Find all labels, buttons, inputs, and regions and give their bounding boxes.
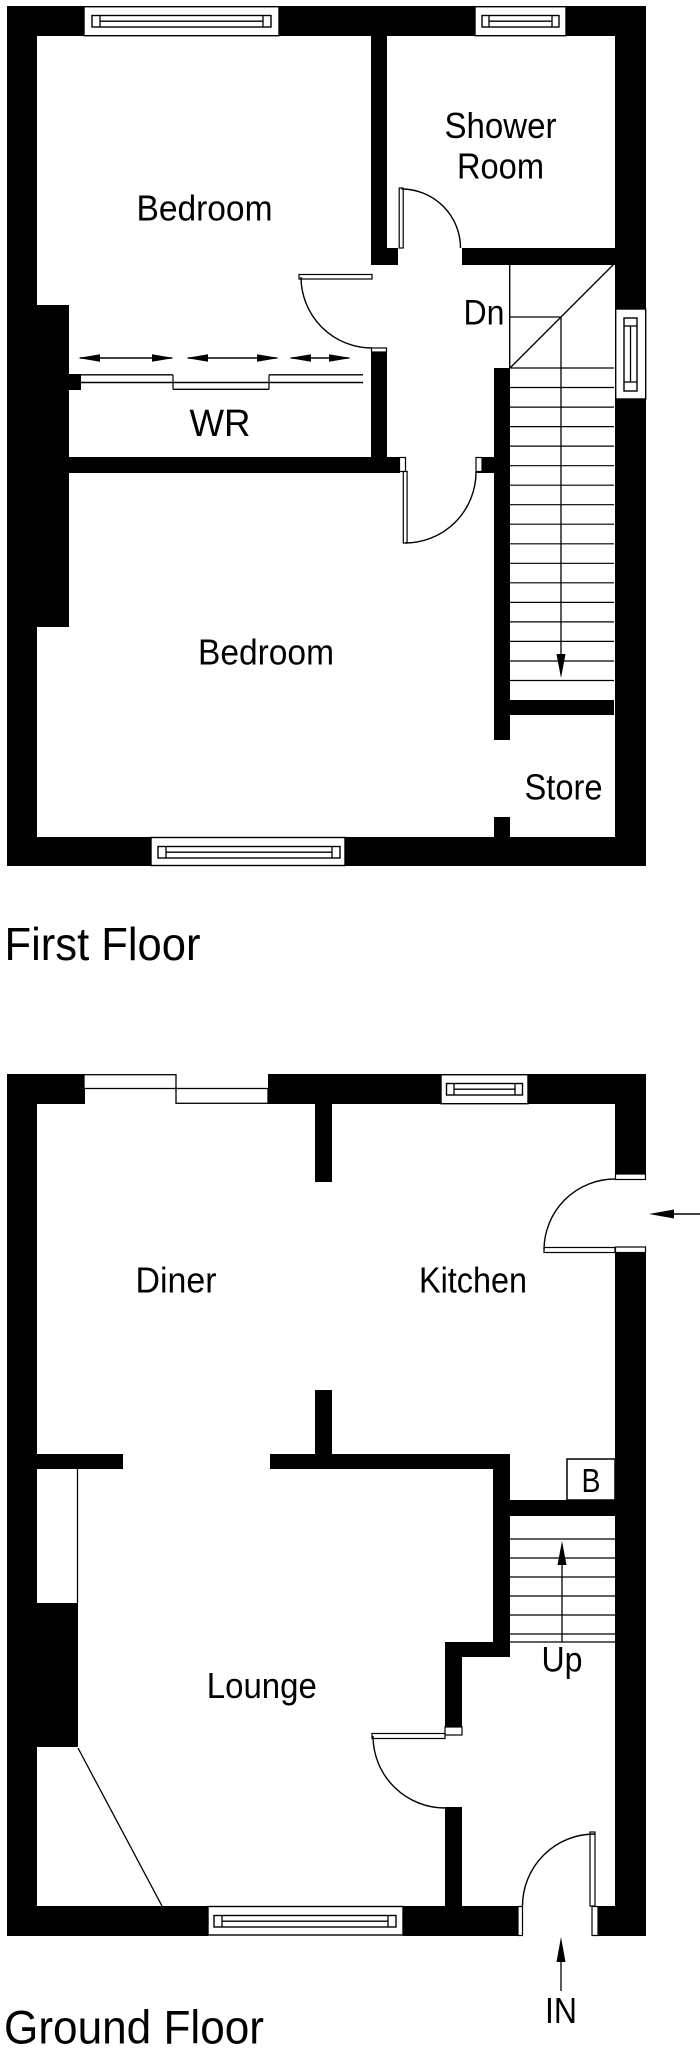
svg-text:Ground Floor: Ground Floor bbox=[4, 2001, 264, 2048]
svg-text:Store: Store bbox=[525, 767, 603, 808]
svg-text:Room: Room bbox=[457, 146, 544, 187]
svg-text:Lounge: Lounge bbox=[207, 1665, 317, 1706]
svg-text:IN: IN bbox=[545, 1990, 577, 2031]
svg-text:Bedroom: Bedroom bbox=[137, 188, 273, 229]
svg-text:Bedroom: Bedroom bbox=[198, 632, 334, 673]
svg-text:WR: WR bbox=[190, 403, 251, 445]
svg-text:First Floor: First Floor bbox=[5, 918, 201, 970]
svg-text:Diner: Diner bbox=[136, 1260, 217, 1301]
svg-text:Up: Up bbox=[542, 1640, 583, 1679]
svg-text:B: B bbox=[582, 1462, 601, 1499]
svg-text:Kitchen: Kitchen bbox=[419, 1260, 527, 1301]
svg-text:Shower: Shower bbox=[445, 105, 557, 146]
svg-text:Dn: Dn bbox=[464, 293, 505, 332]
